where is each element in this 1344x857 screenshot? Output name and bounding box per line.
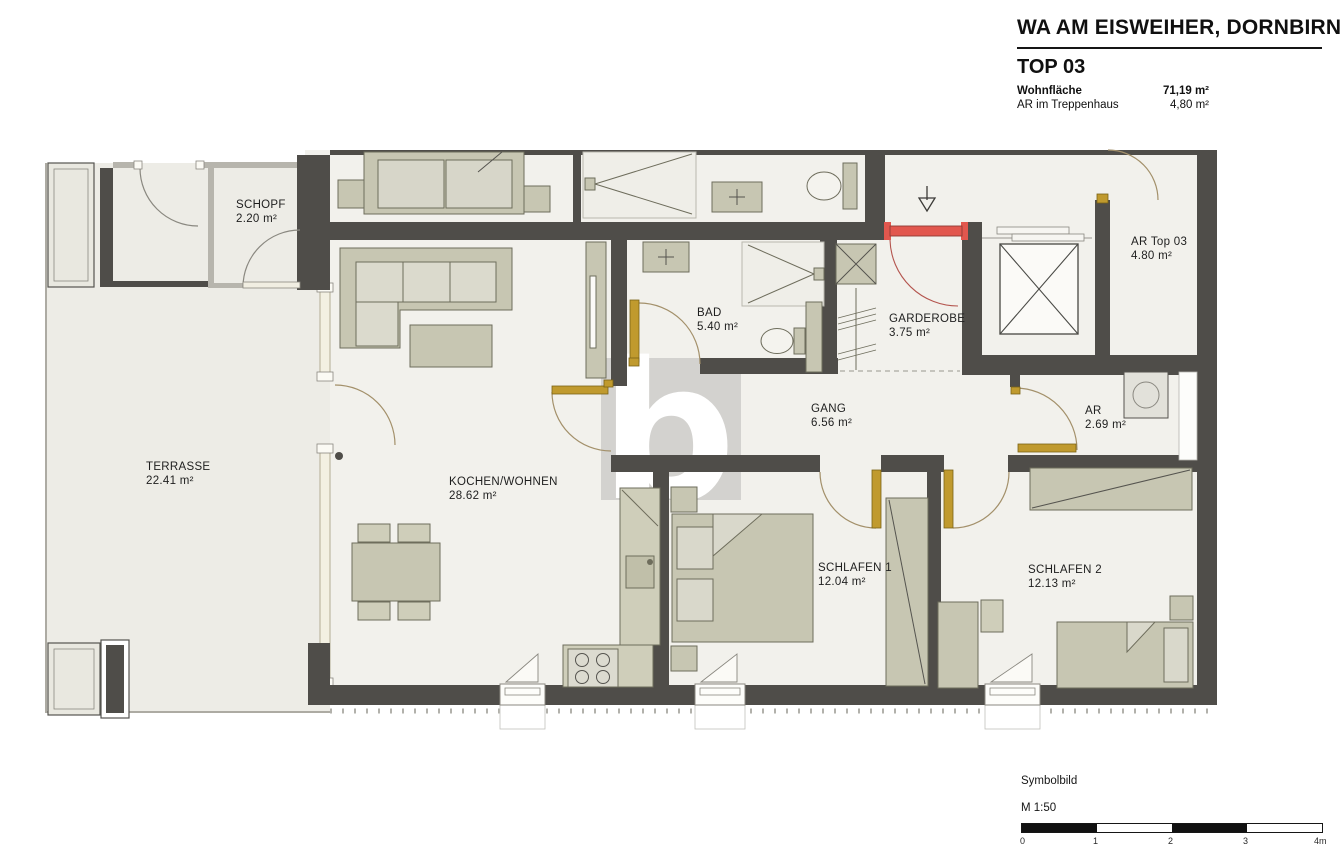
room-name: GARDEROBE — [889, 312, 965, 326]
scale-tick: 0 — [1020, 836, 1025, 846]
scale-tick: 1 — [1093, 836, 1098, 846]
room-label-gang: GANG 6.56 m² — [811, 402, 852, 430]
room-label-ar-top-03: AR Top 03 4.80 m² — [1131, 235, 1187, 263]
room-label-schopf: SCHOPF 2.20 m² — [236, 198, 286, 226]
coffee-table — [410, 325, 492, 367]
door-stop-dot — [335, 452, 343, 460]
stair-landing — [1012, 234, 1084, 241]
scale-segment — [1097, 824, 1172, 832]
room-label-ar: AR 2.69 m² — [1085, 404, 1126, 432]
room-label-bad: BAD 5.40 m² — [697, 306, 738, 334]
elevator — [1000, 244, 1078, 334]
room-name: BAD — [697, 306, 738, 320]
bedroom-2-door-leaf — [944, 470, 953, 528]
floor-plan: b — [0, 0, 1344, 857]
room-label-schlafen-2: SCHLAFEN 2 12.13 m² — [1028, 563, 1102, 591]
scale-tick: 3 — [1243, 836, 1248, 846]
symbolbild-note: Symbolbild — [1021, 775, 1331, 787]
tv-board — [586, 242, 606, 378]
bad-door-leaf — [630, 300, 639, 362]
room-name: SCHLAFEN 1 — [818, 561, 892, 575]
room-area: 12.13 m² — [1028, 577, 1102, 591]
scale-tick: 2 — [1168, 836, 1173, 846]
scale-tick: 4m — [1314, 836, 1327, 846]
scale-segment — [1172, 824, 1247, 832]
room-area: 22.41 m² — [146, 474, 210, 488]
room-name: SCHLAFEN 2 — [1028, 563, 1102, 577]
room-area: 5.40 m² — [697, 320, 738, 334]
entrance-door-leaf — [890, 226, 962, 236]
room-area: 12.04 m² — [818, 575, 892, 589]
room-name: AR — [1085, 404, 1126, 418]
living-gang-door-leaf — [552, 386, 608, 394]
ar-door-leaf — [1018, 444, 1076, 452]
room-name: TERRASSE — [146, 460, 210, 474]
room-name: SCHOPF — [236, 198, 286, 212]
room-name: GANG — [811, 402, 852, 416]
ar-top-door-cap — [1097, 194, 1108, 203]
stair-landing — [997, 227, 1069, 234]
scale-ticks: 0 1 2 3 4m — [1021, 836, 1331, 848]
room-area: 4.80 m² — [1131, 249, 1187, 263]
room-area: 2.20 m² — [236, 212, 286, 226]
scale-segment — [1022, 824, 1097, 832]
room-name: AR Top 03 — [1131, 235, 1187, 249]
bedroom-1-door-leaf — [872, 470, 881, 528]
room-name: KOCHEN/WOHNEN — [449, 475, 558, 489]
room-label-terrasse: TERRASSE 22.41 m² — [146, 460, 210, 488]
scale-segment — [1247, 824, 1322, 832]
room-label-kochen-wohnen: KOCHEN/WOHNEN 28.62 m² — [449, 475, 558, 503]
room-area: 28.62 m² — [449, 489, 558, 503]
room-area: 3.75 m² — [889, 326, 965, 340]
room-area: 6.56 m² — [811, 416, 852, 430]
room-label-schlafen-1: SCHLAFEN 1 12.04 m² — [818, 561, 892, 589]
scale-label: M 1:50 — [1021, 802, 1331, 814]
scale-bar — [1021, 823, 1323, 833]
room-area: 2.69 m² — [1085, 418, 1126, 432]
schopf-door-leaf — [243, 282, 300, 288]
scale-block: Symbolbild M 1:50 0 1 2 3 4m — [1021, 775, 1331, 848]
floor-plan-page: WA AM EISWEIHER, DORNBIRN TOP 03 Wohnflä… — [0, 0, 1344, 857]
room-label-garderobe: GARDEROBE 3.75 m² — [889, 312, 965, 340]
